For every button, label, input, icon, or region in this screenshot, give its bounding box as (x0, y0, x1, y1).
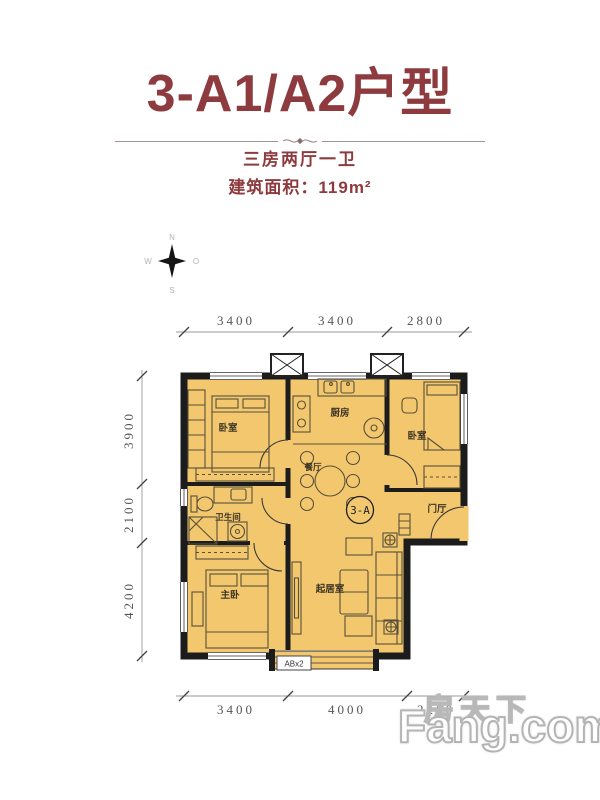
floor-plan-page: 3-A1/A2户型 三房两厅一卫 建筑面积：119m² N S W O 340 (0, 0, 600, 800)
title-divider (115, 136, 485, 146)
window-bottom-master (208, 652, 266, 660)
page-title: 3-A1/A2户型 (0, 66, 600, 122)
room-label-bedroom-nw: 卧室 (218, 422, 238, 434)
compass-south: S (169, 286, 174, 295)
unit-badge-label: 3-A (350, 504, 370, 517)
window-right-bedroom-ne (460, 394, 468, 444)
compass: N S W O (144, 233, 199, 295)
dimension-chain-top: 3400 3400 2800 (176, 313, 472, 337)
window-tag-label: ABx2 (284, 660, 304, 669)
divider-ornament-icon (281, 136, 319, 146)
compass-star-icon (158, 244, 186, 278)
compass-north: N (169, 233, 175, 242)
room-label-entry: 门厅 (427, 503, 447, 515)
watermark-brand: Fang.com (398, 699, 600, 753)
vent-shaft-2 (371, 354, 403, 376)
dim-left-1: 3900 (121, 411, 136, 449)
compass-west: W (144, 257, 152, 266)
dim-bottom-2: 4000 (328, 702, 366, 717)
dim-left-3: 4200 (121, 581, 136, 619)
room-label-kitchen: 厨房 (330, 407, 349, 419)
dim-top-3: 2800 (407, 313, 445, 328)
vent-shaft-1 (271, 354, 303, 376)
dim-bottom-1: 3400 (217, 702, 255, 717)
building-area: 建筑面积：119m² (0, 177, 600, 199)
unit-badge: 3-A (347, 497, 374, 524)
room-label-bedroom-ne: 卧室 (407, 430, 427, 442)
dimension-chain-left: 3900 2100 4200 (121, 370, 147, 662)
window-left-bathroom (180, 489, 188, 506)
dim-left-2: 2100 (121, 495, 136, 533)
window-top-bedroom-ne (412, 372, 450, 380)
room-label-dining: 餐厅 (303, 462, 322, 472)
window-left-master (180, 582, 188, 632)
divider-line-right (322, 141, 485, 142)
room-label-master: 主卧 (220, 589, 240, 601)
dim-top-1: 3400 (217, 313, 255, 328)
divider-line-left (115, 141, 278, 142)
layout-description: 三房两厅一卫 (0, 149, 600, 171)
window-type-tag: ABx2 (277, 656, 311, 670)
dim-top-2: 3400 (318, 313, 356, 328)
window-top-bedroom-nw (210, 372, 262, 380)
room-label-bathroom: 卫生间 (215, 512, 241, 522)
compass-east: O (193, 257, 199, 266)
entry-opening (460, 506, 469, 541)
room-label-living: 起居室 (315, 583, 345, 595)
